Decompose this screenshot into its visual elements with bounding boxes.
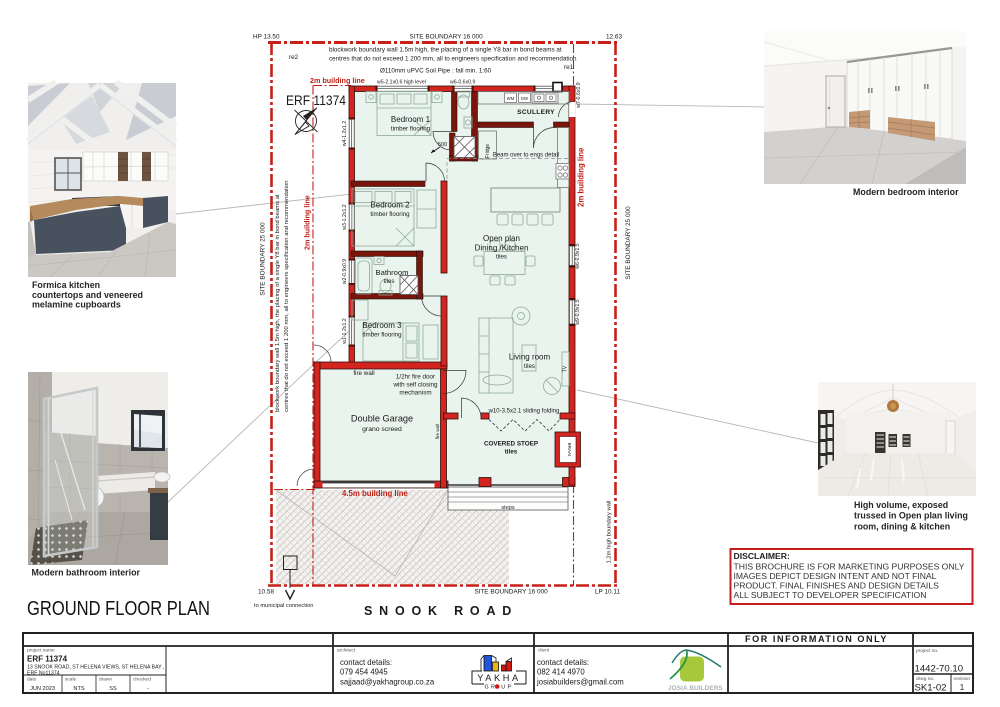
svg-text:w2-0.9x0.9: w2-0.9x0.9 bbox=[342, 259, 348, 284]
svg-text:High volume, exposed: High volume, exposed bbox=[854, 500, 948, 510]
svg-text:10.58: 10.58 bbox=[258, 589, 274, 596]
svg-text:Open plan: Open plan bbox=[483, 234, 520, 243]
svg-text:tiles: tiles bbox=[496, 254, 507, 261]
svg-text:PRODUCT. FINAL FINISHES AND DE: PRODUCT. FINAL FINISHES AND DESIGN DETAI… bbox=[734, 581, 940, 591]
svg-text:w6-0.9x1.5: w6-0.9x1.5 bbox=[575, 243, 581, 268]
svg-text:2m building line: 2m building line bbox=[303, 195, 312, 250]
svg-text:with self closing: with self closing bbox=[392, 382, 438, 389]
svg-text:blockwork boundary wall 1.5m h: blockwork boundary wall 1.5m high, the p… bbox=[329, 47, 562, 54]
svg-text:tiles: tiles bbox=[505, 449, 518, 456]
svg-text:project no.: project no. bbox=[916, 648, 938, 654]
svg-text:scale: scale bbox=[65, 677, 77, 683]
svg-text:ALL SUBJECT TO DEVELOPER SPECI: ALL SUBJECT TO DEVELOPER SPECIFICATION bbox=[734, 590, 927, 600]
svg-text:drwg no.: drwg no. bbox=[916, 676, 934, 682]
svg-text:Bedroom 3: Bedroom 3 bbox=[362, 321, 402, 330]
svg-text:fire wall: fire wall bbox=[353, 370, 374, 377]
svg-text:drawn: drawn bbox=[99, 677, 112, 683]
svg-text:Dining /Kitchen: Dining /Kitchen bbox=[475, 244, 529, 253]
svg-text:1/2hr fire door: 1/2hr fire door bbox=[396, 374, 435, 381]
svg-text:4.5m building line: 4.5m building line bbox=[342, 489, 409, 498]
svg-text:SCULLERY: SCULLERY bbox=[517, 109, 555, 116]
svg-text:Fridge: Fridge bbox=[485, 144, 491, 158]
svg-text:HP 13.50: HP 13.50 bbox=[253, 34, 280, 41]
svg-text:re2: re2 bbox=[289, 54, 299, 61]
svg-text:Beam over to engs detail: Beam over to engs detail bbox=[493, 153, 559, 159]
svg-text:IMAGES DEPICT DESIGN INTENT AN: IMAGES DEPICT DESIGN INTENT AND NOT FINA… bbox=[734, 571, 937, 581]
svg-text:1442-70.10: 1442-70.10 bbox=[915, 664, 964, 675]
svg-text:JUN 2023: JUN 2023 bbox=[30, 686, 55, 692]
svg-text:checked: checked bbox=[133, 677, 151, 683]
svg-text:2m building line: 2m building line bbox=[577, 147, 586, 207]
svg-text:1.2m high boundary wall: 1.2m high boundary wall bbox=[607, 501, 613, 564]
svg-text:TV: TV bbox=[563, 365, 569, 372]
svg-text:room, dining & kitchen: room, dining & kitchen bbox=[854, 521, 950, 531]
svg-text:contact details:: contact details: bbox=[537, 658, 589, 667]
svg-text:BRAAI: BRAAI bbox=[567, 443, 572, 457]
svg-text:timber flooring: timber flooring bbox=[391, 126, 431, 133]
svg-text:1: 1 bbox=[960, 683, 965, 692]
svg-text:w7-0.6x0.9: w7-0.6x0.9 bbox=[576, 82, 582, 107]
svg-text:082 414 4970: 082 414 4970 bbox=[537, 668, 585, 677]
svg-text:Ø110mm uPVC Soil Pipe : fall m: Ø110mm uPVC Soil Pipe : fall min. 1:60 bbox=[380, 68, 492, 75]
svg-text:SS: SS bbox=[109, 686, 117, 692]
svg-text:timber flooring: timber flooring bbox=[370, 211, 410, 218]
svg-text:sajjaad@yakhagroup.co.za: sajjaad@yakhagroup.co.za bbox=[340, 678, 435, 687]
svg-text:ERF 11374: ERF 11374 bbox=[27, 655, 68, 664]
svg-text:Bathroom: Bathroom bbox=[376, 268, 409, 277]
svg-text:w1-1.2x1.2: w1-1.2x1.2 bbox=[342, 318, 348, 343]
svg-text:-: - bbox=[147, 686, 149, 692]
svg-text:w10-3.5x2.1 sliding folding: w10-3.5x2.1 sliding folding bbox=[488, 409, 560, 415]
svg-text:project name: project name bbox=[27, 648, 55, 654]
svg-text:YAKHA: YAKHA bbox=[477, 673, 520, 683]
svg-text:w4-1.2x1.2: w4-1.2x1.2 bbox=[342, 121, 348, 146]
svg-text:josiabuilders@gmail.com: josiabuilders@gmail.com bbox=[536, 678, 624, 687]
svg-text:WM: WM bbox=[507, 96, 515, 101]
svg-text:GROUND FLOOR PLAN: GROUND FLOOR PLAN bbox=[27, 597, 210, 620]
svg-text:client: client bbox=[538, 648, 550, 654]
svg-text:mechanism: mechanism bbox=[399, 390, 431, 397]
svg-text:ERF No11374: ERF No11374 bbox=[27, 671, 60, 677]
svg-text:COVERED STOEP: COVERED STOEP bbox=[484, 441, 538, 448]
svg-text:Modern bathroom interior: Modern bathroom interior bbox=[32, 568, 141, 578]
svg-text:architect: architect bbox=[337, 648, 356, 654]
svg-text:countertops and veneered: countertops and veneered bbox=[32, 290, 143, 300]
svg-text:fire wall: fire wall bbox=[435, 424, 440, 439]
svg-text:THIS BROCHURE IS FOR MARKETING: THIS BROCHURE IS FOR MARKETING PURPOSES … bbox=[734, 562, 965, 572]
svg-text:centres that do not exceed 1 2: centres that do not exceed 1 200 mm, all… bbox=[284, 180, 290, 412]
svg-text:LP 10.11: LP 10.11 bbox=[595, 589, 620, 596]
svg-text:melamine cupboards: melamine cupboards bbox=[32, 300, 121, 310]
svg-text:w9-0.9x1.5: w9-0.9x1.5 bbox=[575, 299, 581, 324]
svg-text:w5-2.1x0.6 high level: w5-2.1x0.6 high level bbox=[377, 80, 426, 86]
svg-text:timber flooring: timber flooring bbox=[362, 332, 402, 339]
svg-text:NTS: NTS bbox=[73, 686, 84, 692]
svg-text:blockwork boundary wall 1.5m h: blockwork boundary wall 1.5m high, the p… bbox=[275, 194, 281, 412]
svg-text:Modern bedroom interior: Modern bedroom interior bbox=[853, 187, 959, 197]
svg-text:date: date bbox=[27, 677, 37, 683]
svg-text:tiles: tiles bbox=[383, 278, 394, 285]
svg-text:contact details:: contact details: bbox=[340, 658, 392, 667]
svg-text:SITE BOUNDARY 16 000: SITE BOUNDARY 16 000 bbox=[409, 34, 483, 41]
svg-text:grano screed: grano screed bbox=[362, 426, 402, 433]
svg-text:w3-1.2x1.2: w3-1.2x1.2 bbox=[342, 204, 348, 229]
svg-text:SNOOK ROAD: SNOOK ROAD bbox=[364, 604, 518, 618]
svg-text:JOSIA BUILDERS: JOSIA BUILDERS bbox=[668, 685, 723, 692]
svg-text:Bedroom 2: Bedroom 2 bbox=[370, 201, 410, 210]
svg-text:Bedroom 1: Bedroom 1 bbox=[391, 115, 431, 124]
svg-text:ERF 11374: ERF 11374 bbox=[286, 93, 346, 108]
svg-text:revision: revision bbox=[954, 676, 971, 682]
svg-text:12.63: 12.63 bbox=[606, 34, 622, 41]
svg-text:steps: steps bbox=[501, 505, 514, 511]
svg-text:w6-0.6x0.9: w6-0.6x0.9 bbox=[450, 80, 475, 86]
svg-text:079 454 4945: 079 454 4945 bbox=[340, 668, 388, 677]
svg-text:tiles: tiles bbox=[524, 363, 535, 370]
svg-text:DISCLAIMER:: DISCLAIMER: bbox=[734, 551, 790, 561]
svg-text:SITE BOUNDARY 25 000: SITE BOUNDARY 25 000 bbox=[625, 206, 632, 280]
svg-text:centres that do not exceed 1 2: centres that do not exceed 1 200 mm, all… bbox=[329, 56, 577, 63]
svg-text:SK1-02: SK1-02 bbox=[915, 683, 947, 694]
svg-text:re1: re1 bbox=[564, 64, 574, 71]
svg-text:Living room: Living room bbox=[509, 353, 551, 362]
svg-text:Double Garage: Double Garage bbox=[351, 414, 413, 424]
svg-text:SITE BOUNDARY 16 000: SITE BOUNDARY 16 000 bbox=[474, 589, 548, 596]
svg-text:to municipal connection: to municipal connection bbox=[254, 603, 313, 609]
svg-text:trussed in Open plan living: trussed in Open plan living bbox=[854, 511, 968, 521]
svg-text:DW: DW bbox=[521, 96, 528, 101]
svg-text:Formica kitchen: Formica kitchen bbox=[32, 280, 100, 290]
svg-text:FOR INFORMATION ONLY: FOR INFORMATION ONLY bbox=[745, 634, 888, 644]
svg-text:SITE BOUNDARY 25 000: SITE BOUNDARY 25 000 bbox=[260, 222, 267, 296]
svg-text:2m building line: 2m building line bbox=[310, 76, 365, 85]
